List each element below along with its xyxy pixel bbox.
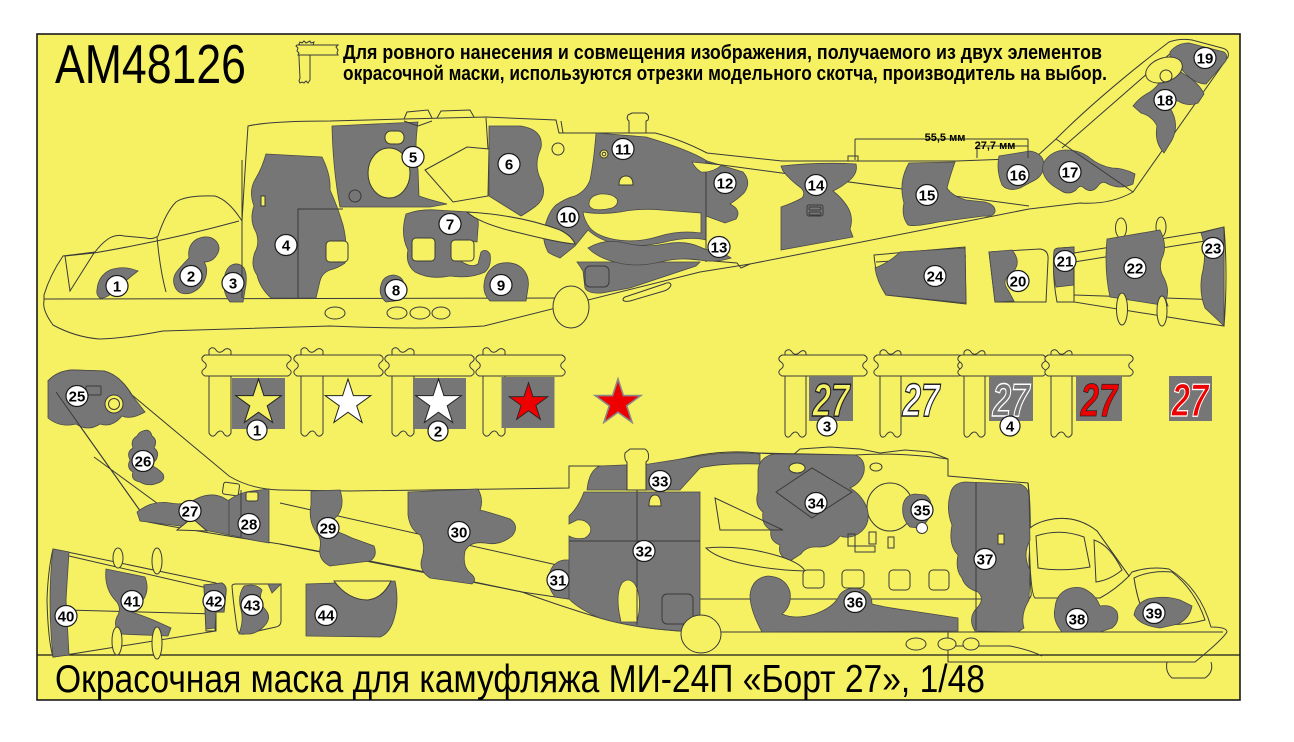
svg-text:38: 38 [1069,612,1086,629]
svg-text:29: 29 [320,521,337,538]
svg-text:18: 18 [1157,93,1174,110]
svg-text:30: 30 [451,525,468,542]
svg-text:Окрасочная маска для камуфляжа: Окрасочная маска для камуфляжа МИ-24П «Б… [55,658,985,701]
svg-text:19: 19 [1197,51,1214,68]
svg-text:2: 2 [434,424,442,441]
svg-text:13: 13 [711,240,728,257]
svg-text:4: 4 [1006,419,1015,436]
svg-text:28: 28 [241,517,258,534]
svg-text:39: 39 [1146,606,1163,623]
svg-text:2: 2 [187,269,195,286]
svg-text:22: 22 [1127,261,1144,278]
svg-text:АМ48126: АМ48126 [55,33,246,95]
svg-text:27: 27 [1080,376,1119,426]
svg-text:окрасочной маски, используются: окрасочной маски, используются отрезки м… [343,63,1107,85]
svg-text:1: 1 [253,423,261,440]
svg-text:43: 43 [244,598,261,615]
svg-text:31: 31 [550,573,567,590]
svg-text:41: 41 [124,594,141,611]
svg-text:32: 32 [636,544,653,561]
svg-text:34: 34 [808,496,825,513]
svg-text:26: 26 [135,454,152,471]
svg-text:17: 17 [1062,165,1079,182]
svg-text:6: 6 [505,157,513,174]
svg-text:23: 23 [1205,241,1222,258]
svg-text:40: 40 [58,609,75,626]
svg-text:4: 4 [282,238,291,255]
svg-text:42: 42 [206,594,223,611]
svg-text:55,5 мм: 55,5 мм [925,132,966,144]
svg-text:14: 14 [808,178,825,195]
svg-text:27: 27 [1171,376,1210,426]
svg-text:27: 27 [182,504,199,521]
svg-text:8: 8 [392,283,400,300]
svg-text:Для ровного нанесения и совмещ: Для ровного нанесения и совмещения изобр… [343,42,1102,64]
svg-text:3: 3 [823,419,831,436]
svg-text:44: 44 [318,608,335,625]
svg-text:33: 33 [652,474,669,491]
svg-text:12: 12 [717,176,734,193]
svg-text:27,7 мм: 27,7 мм [975,140,1016,152]
svg-text:7: 7 [446,217,454,234]
svg-text:11: 11 [615,142,631,159]
svg-text:5: 5 [409,150,417,167]
svg-text:35: 35 [914,503,931,520]
svg-text:36: 36 [847,595,864,612]
svg-text:16: 16 [1010,168,1027,185]
svg-text:20: 20 [1010,274,1027,291]
svg-text:15: 15 [919,188,936,205]
svg-text:3: 3 [229,276,237,293]
svg-text:1: 1 [113,279,121,296]
svg-text:25: 25 [69,389,86,406]
svg-text:21: 21 [1057,254,1074,271]
svg-text:24: 24 [927,269,944,286]
svg-text:10: 10 [560,210,577,227]
svg-text:9: 9 [497,278,505,295]
svg-text:27: 27 [902,376,941,426]
svg-text:37: 37 [977,552,994,569]
